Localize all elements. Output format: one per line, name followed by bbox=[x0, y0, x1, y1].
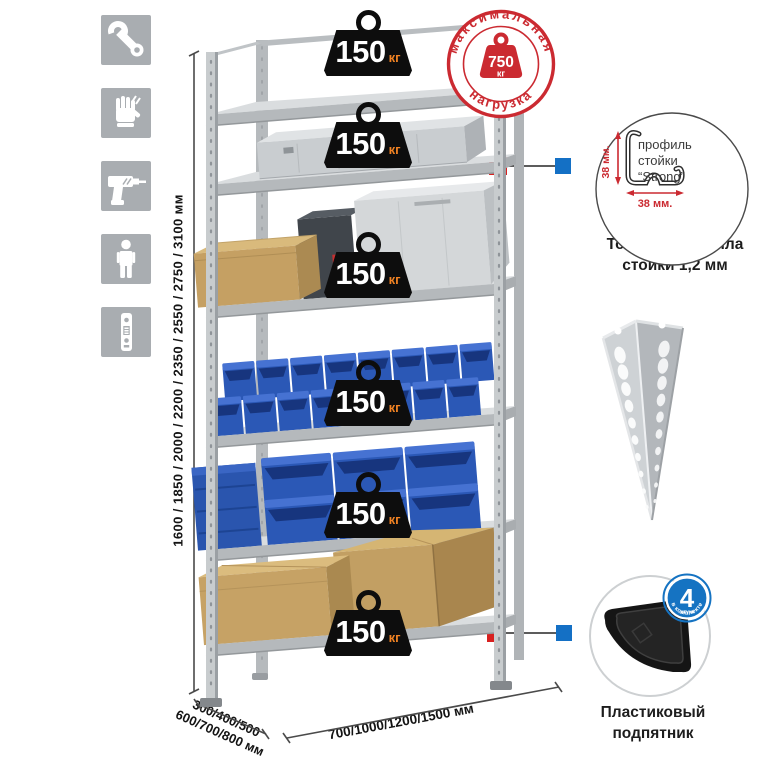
svg-text:профиль: профиль bbox=[638, 137, 692, 152]
shelf5-load-badge: 150кг bbox=[324, 472, 412, 538]
svg-text:стойки: стойки bbox=[638, 153, 678, 168]
svg-text:“Strong”: “Strong” bbox=[638, 169, 685, 184]
max-load-stamp: максимальная нагрузка 750 кг bbox=[433, 0, 573, 140]
quantity-badge: 4 штуки в комплекте bbox=[664, 575, 711, 622]
svg-text:38 мм.: 38 мм. bbox=[638, 198, 673, 210]
callout-marker-blue-top bbox=[555, 158, 571, 174]
callout-marker-blue-bottom bbox=[556, 625, 572, 641]
svg-text:кг: кг bbox=[497, 69, 506, 79]
svg-text:38 мм.: 38 мм. bbox=[600, 145, 612, 178]
plastic-foot-callout: 4 штуки в комплекте bbox=[583, 570, 728, 710]
shelf3-load-badge: 150кг bbox=[324, 232, 412, 298]
svg-text:4: 4 bbox=[680, 583, 695, 613]
shelf2-load-badge: 150кг bbox=[324, 102, 412, 168]
product-infographic: 150кг 150кг 150кг 150кг 150кг 150кг макс… bbox=[0, 0, 765, 765]
post-profile-callout: 38 мм. 38 мм. профиль стойки “Strong” bbox=[594, 105, 759, 275]
shelf4-load-badge: 150кг bbox=[324, 360, 412, 426]
shelf6-load-badge: 150кг bbox=[324, 590, 412, 656]
shelf1-load-badge: 150кг bbox=[324, 10, 412, 76]
